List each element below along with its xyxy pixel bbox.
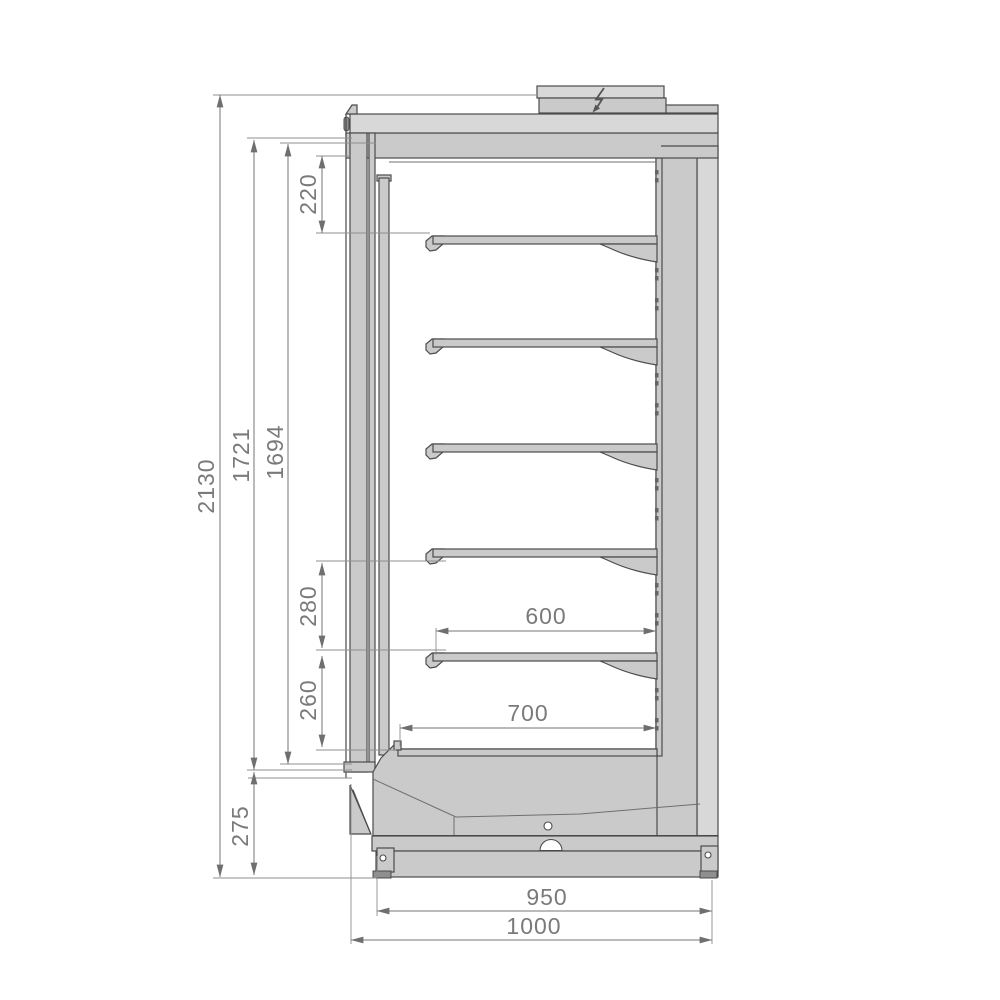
dim-label-upper-height: 1721: [228, 427, 254, 482]
shelf-bracket: [600, 244, 657, 262]
shelf-plank: [433, 549, 657, 557]
dim-label-top-section: 220: [295, 173, 321, 214]
front-frame: [344, 114, 391, 778]
shelf-plank: [433, 236, 657, 244]
shelf-bracket: [600, 452, 657, 470]
dim-label-shelf-depth: 600: [525, 603, 566, 629]
front-top-wedge: [346, 105, 357, 114]
electrical-box: [537, 86, 666, 113]
front-column-foot: [344, 762, 375, 772]
front-column: [350, 133, 367, 772]
front-strip: [369, 133, 375, 770]
bottom-deck: [398, 749, 657, 756]
base-hole: [544, 822, 552, 830]
shelf-plank: [433, 444, 657, 452]
dim-label-shelf-gap-lower: 260: [295, 679, 321, 720]
shelf-1: [426, 236, 657, 262]
back-panel-outer: [697, 146, 718, 836]
shelf-plank: [433, 339, 657, 347]
back-top-cap: [665, 105, 718, 113]
shelf-4: [426, 549, 657, 575]
cabinet-body: [344, 86, 718, 878]
shelf-bracket: [600, 661, 657, 679]
technical-drawing-page: 2130 1721 1694 220 280 260 275 600 700 9…: [0, 0, 1000, 1000]
foot-block-right: [701, 846, 718, 872]
foot-pad-right: [700, 871, 717, 878]
shelf-5: [426, 653, 657, 679]
dim-label-total-height: 2130: [193, 458, 219, 513]
air-duct: [379, 178, 389, 755]
dim-label-total-depth: 1000: [506, 913, 561, 939]
cabinet-section-drawing: 2130 1721 1694 220 280 260 275 600 700 9…: [0, 0, 1000, 1000]
bottom-rail: [376, 851, 718, 877]
shelf-3: [426, 444, 657, 470]
dim-label-base-depth: 950: [526, 884, 567, 910]
dim-label-shelf-gap-upper: 280: [295, 585, 321, 626]
foot-bolt-left: [380, 855, 386, 861]
dim-label-base-height: 275: [227, 805, 253, 846]
top-panel: [350, 114, 718, 133]
shelf-2: [426, 339, 657, 365]
foot-pad-left: [373, 871, 391, 878]
foot-bolt-right: [705, 852, 711, 858]
shelf-bracket: [600, 557, 657, 575]
dim-label-inner-height: 1694: [262, 424, 288, 479]
shelf-bracket: [600, 347, 657, 365]
dim-label-deck-depth: 700: [507, 700, 548, 726]
base-body: [373, 745, 657, 836]
shelf-plank: [433, 653, 657, 661]
